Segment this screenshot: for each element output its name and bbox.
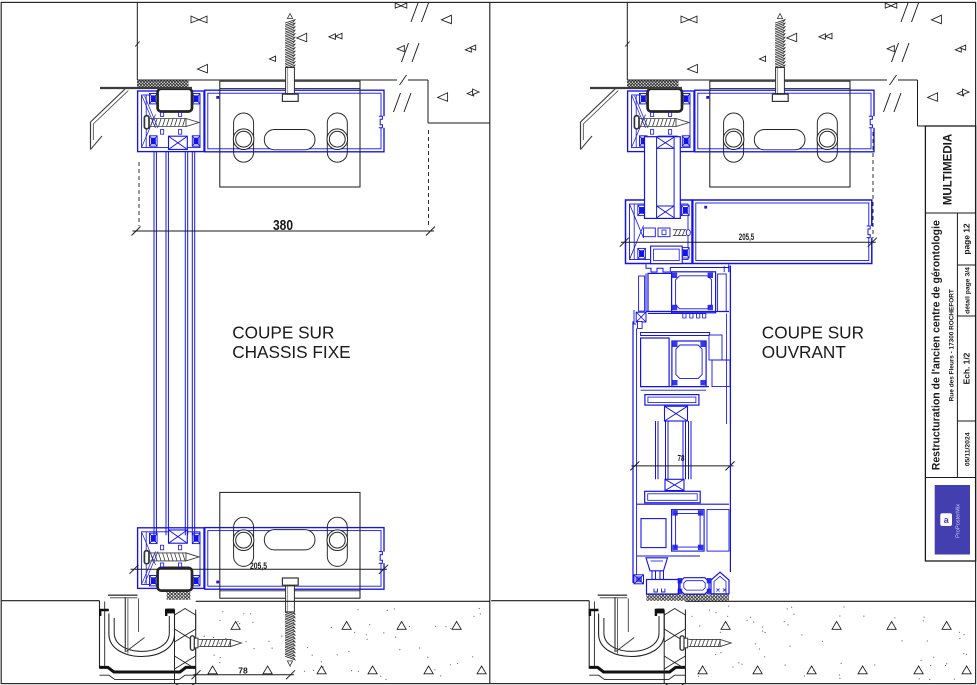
svg-text:05/11/2024: 05/11/2024 [965,432,972,466]
svg-text:MULTIMEDIA: MULTIMEDIA [943,134,955,205]
svg-text:page 12: page 12 [962,223,972,255]
svg-text:COUPE SUR: COUPE SUR [232,322,334,342]
svg-text:380: 380 [273,218,293,234]
svg-text:Rue des Fleurs - 17300 ROCHEFO: Rue des Fleurs - 17300 ROCHEFORT [949,289,956,401]
svg-text:ProPosterMix: ProPosterMix [956,504,962,538]
svg-text:COUPE SUR: COUPE SUR [762,322,864,342]
svg-text:78: 78 [678,454,685,463]
svg-text:détail page 3/4: détail page 3/4 [965,267,972,314]
svg-text:205,5: 205,5 [739,232,755,242]
svg-text:Ech. 1/2: Ech. 1/2 [962,352,972,384]
svg-text:78: 78 [238,666,248,675]
svg-text:CHASSIS FIXE: CHASSIS FIXE [232,342,350,362]
svg-text:OUVRANT: OUVRANT [762,342,847,362]
svg-text:Restructuration de l'ancien ce: Restructuration de l'ancien centre de gé… [931,220,943,470]
svg-text:205,5: 205,5 [250,561,267,571]
